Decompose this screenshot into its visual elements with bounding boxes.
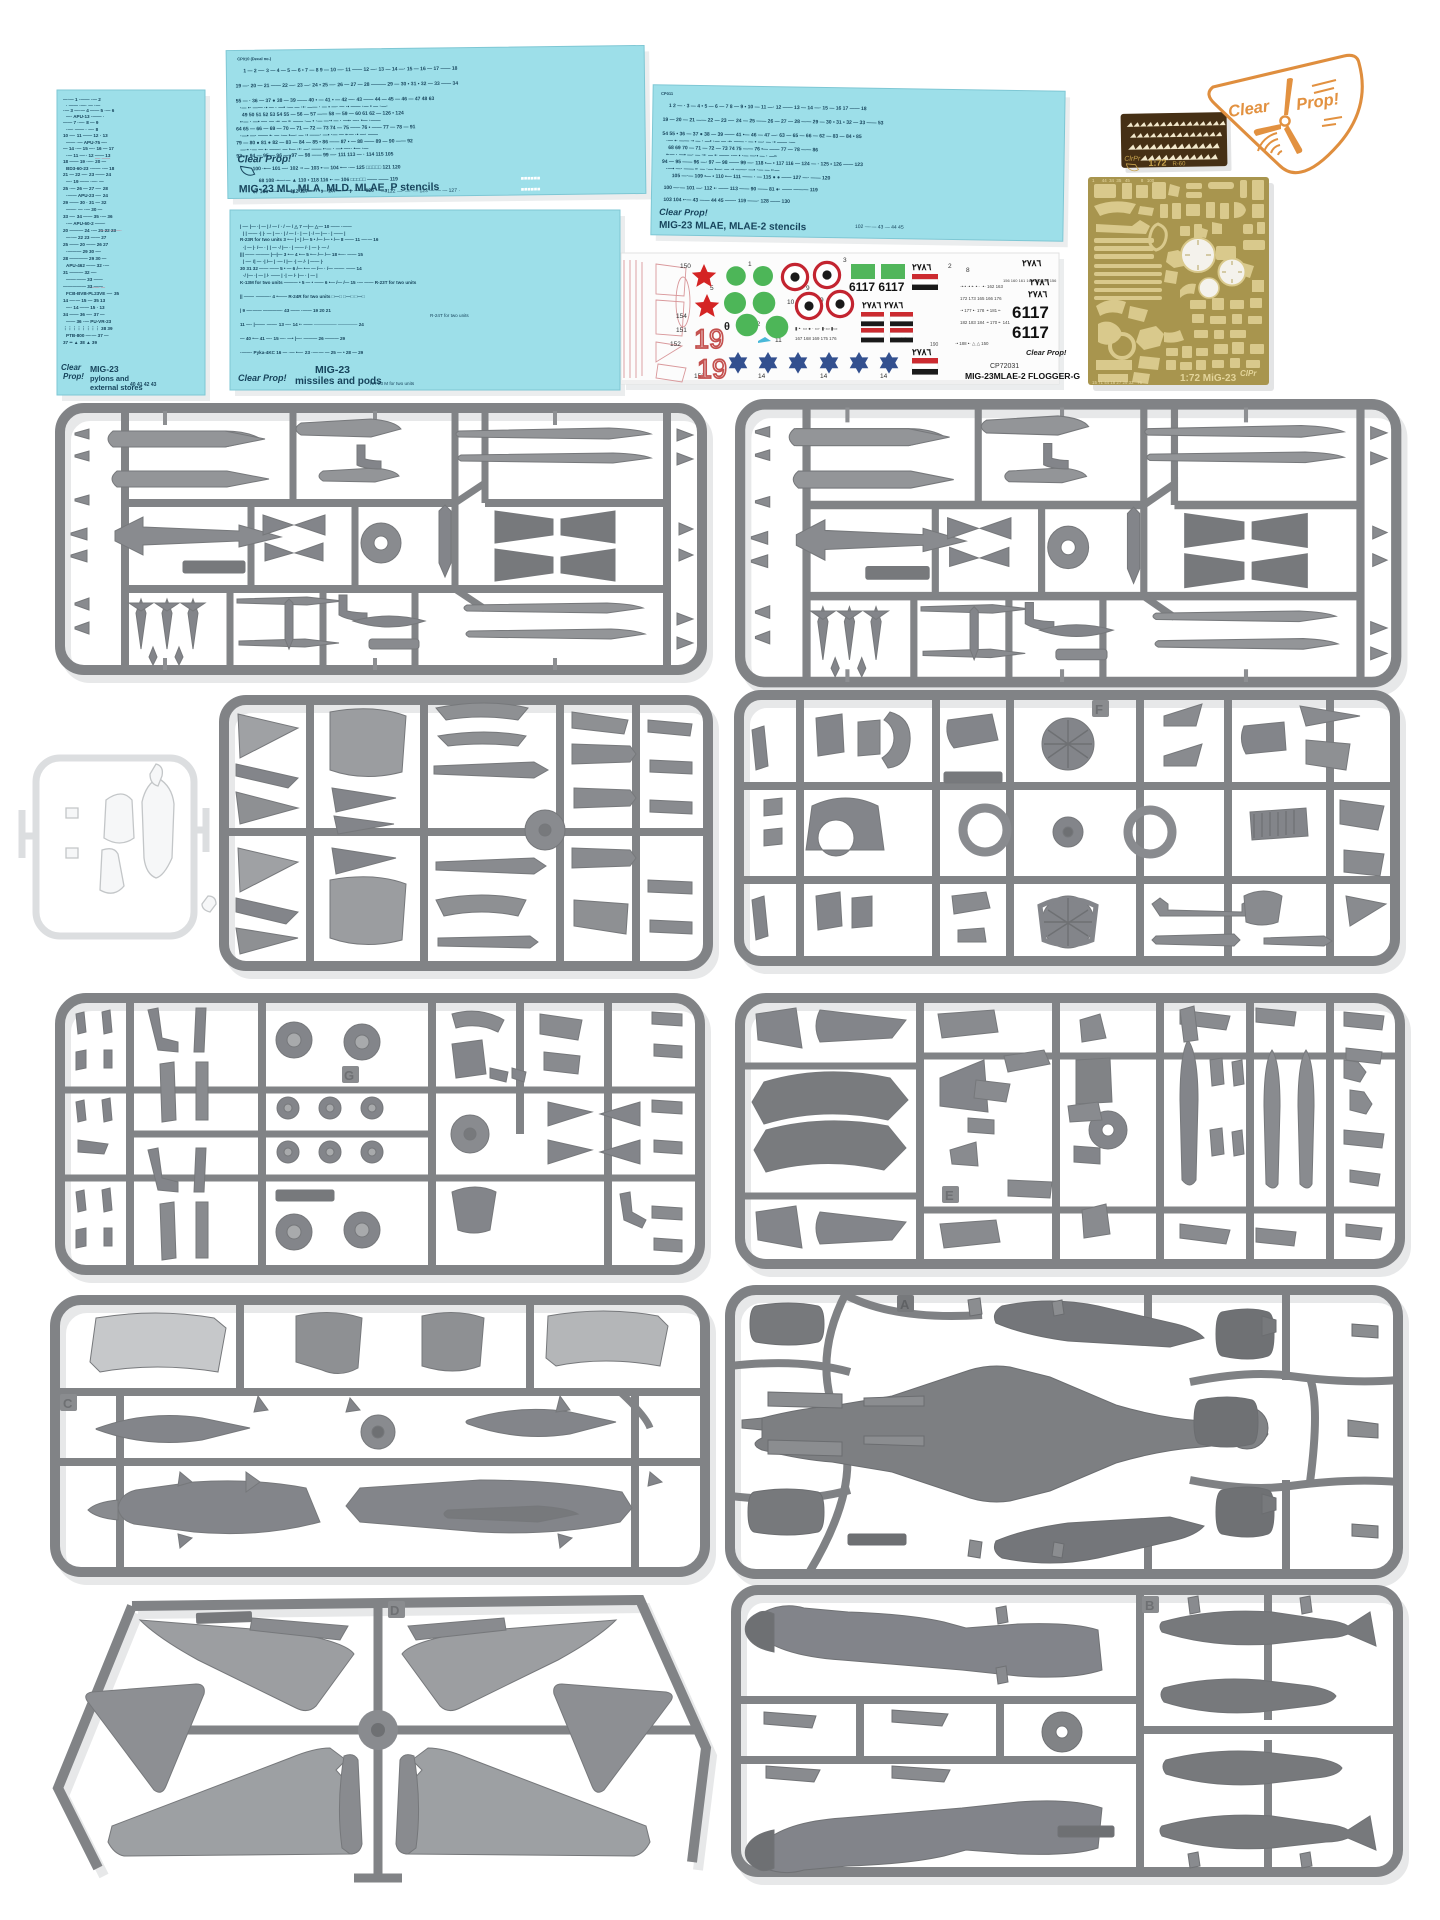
svg-text:—— 36 ·— PU-VR-23: —— 36 ·— PU-VR-23 bbox=[66, 319, 112, 324]
svg-text:||| —— ——— |—|— 3 •— 4 •—: ||| —— ——— |—|— 3 •— 4 •— 5 •— /— /— 18 … bbox=[240, 252, 363, 257]
svg-text:172 173 165 166 176: 172 173 165 166 176 bbox=[960, 296, 1002, 301]
svg-text:CP010 (Decal no.): CP010 (Decal no.) bbox=[237, 56, 272, 61]
svg-text:—· 14 —— 15 · 13: —· 14 —— 15 · 13 bbox=[66, 305, 105, 310]
svg-text:٢٧٨٦: ٢٧٨٦ bbox=[912, 347, 932, 357]
svg-text:G: G bbox=[344, 1068, 354, 1083]
svg-text:25 —— 20 —— 26 27: 25 —— 20 —— 26 27 bbox=[63, 242, 109, 247]
svg-text:·—· —— · —· 8: ·—· —— · —· 8 bbox=[66, 127, 99, 132]
svg-text:·| — |· /— · | | — ·/ |— · | —: ·| — |· /— · | | — ·/ |— · | —— /· | — |… bbox=[243, 245, 330, 250]
svg-text:1 44 34 35 45: 1 44 34 35 45 8 100 bbox=[1092, 178, 1155, 183]
svg-text:pylons and: pylons and bbox=[90, 374, 129, 383]
svg-text:Clear Prop!: Clear Prop! bbox=[238, 373, 287, 383]
svg-text:FCB-BVB-PL23VE —· 35: FCB-BVB-PL23VE —· 35 bbox=[66, 291, 120, 296]
svg-text:1:72 MiG-23: 1:72 MiG-23 bbox=[1180, 373, 1237, 384]
svg-text:14 —·— 15 — 35 13: 14 —·— 15 — 35 13 bbox=[63, 298, 106, 303]
svg-text:21 — 22 —· 23 —— 24: 21 — 22 —· 23 —— 24 bbox=[63, 172, 111, 177]
svg-text:MIG-23 MLAE, MLAE-2 stencils: MIG-23 MLAE, MLAE-2 stencils bbox=[659, 220, 807, 233]
svg-text:▮ •· ▭ ● · ▭· ▮·▭ ▮▭: ▮ •· ▭ ● · ▭· ▮·▭ ▮▭ bbox=[795, 326, 837, 331]
svg-text:ClrPr: ClrPr bbox=[1124, 156, 1141, 163]
svg-text:6117: 6117 bbox=[1012, 303, 1049, 322]
svg-text:152: 152 bbox=[670, 341, 681, 348]
svg-text:37 •• ▲ 38 ▲ 39: 37 •• ▲ 38 ▲ 39 bbox=[63, 340, 97, 345]
svg-text:C: C bbox=[63, 1396, 73, 1411]
svg-text:167 168 169 175 176: 167 168 169 175 176 bbox=[795, 336, 837, 341]
svg-text:11 —· |——· ——· 13 —· 14 •· —: 11 —· |——· ——· 13 —· 14 •· —— ─────── ──… bbox=[240, 322, 364, 327]
svg-text:MIG-23MLAE-2 FLOGGER-G: MIG-23MLAE-2 FLOGGER-G bbox=[965, 371, 1080, 381]
svg-text:30 31 32 —— —— 5 • — 6 /— •: 30 31 32 —— —— 5 • — 6 /— •— — /— · /— —… bbox=[240, 266, 362, 271]
svg-text:156 160 161 162 163 155 156: 156 160 161 162 163 155 156 bbox=[1003, 278, 1057, 283]
svg-text:|| ——· ———· 4 •—— R-24R for: || ——· ———· 4 •—— R-24R for two units □—… bbox=[240, 294, 365, 299]
svg-text:40 41 42 43: 40 41 42 43 bbox=[130, 382, 157, 388]
svg-text:102 —·— 43 — 44 45: 102 —·— 43 — 44 45 bbox=[855, 224, 904, 231]
svg-text:KH-23 M for two units: KH-23 M for two units bbox=[370, 381, 415, 386]
svg-text:8: 8 bbox=[966, 267, 970, 274]
svg-text:Clear: Clear bbox=[61, 363, 82, 372]
svg-text:CP72031: CP72031 bbox=[990, 363, 1019, 370]
svg-text:————— 33 ——: ————— 33 —— bbox=[63, 284, 103, 289]
svg-text:R-23R for two units 3 •— |: R-23R for two units 3 •— | • | /— 5 • /—… bbox=[240, 237, 379, 242]
svg-text:·/ |— ·| — | /· —— | ·| — /· |: ·/ |— ·| — | /· —— | ·| — /· |— · | — | bbox=[243, 273, 318, 278]
svg-text:٢٧٨٦: ٢٧٨٦ bbox=[1022, 258, 1042, 268]
svg-text:F: F bbox=[1095, 702, 1103, 717]
svg-text:190: 190 bbox=[930, 342, 939, 348]
svg-text:R-60: R-60 bbox=[1172, 161, 1186, 167]
svg-text:14: 14 bbox=[820, 373, 828, 380]
svg-text:APU-462 —— 32 ·—: APU-462 —— 32 ·— bbox=[66, 263, 110, 268]
svg-text:Clear Prop!: Clear Prop! bbox=[1026, 348, 1067, 357]
svg-text:٢٧٨٦: ٢٧٨٦ bbox=[912, 262, 932, 272]
svg-text:٢٧٨٦: ٢٧٨٦ bbox=[1028, 289, 1048, 299]
svg-text:182 183 184 ·• 170 •· 141: 182 183 184 ·• 170 •· 141 bbox=[960, 320, 1011, 325]
svg-text:D: D bbox=[390, 1603, 399, 1618]
svg-text:A: A bbox=[900, 1297, 910, 1312]
svg-text:٢٧٨٦ ٢٧٨٦: ٢٧٨٦ ٢٧٨٦ bbox=[862, 300, 903, 310]
svg-text:1:72: 1:72 bbox=[1148, 158, 1166, 168]
svg-text:B: B bbox=[1145, 1598, 1154, 1613]
svg-text:33 —· 34 —— 35 ·— 36: 33 —· 34 —— 35 ·— 36 bbox=[63, 214, 113, 219]
svg-text:151: 151 bbox=[676, 327, 687, 334]
svg-text:— 14 ·— 15 —· 16 — 17: — 14 ·— 15 —· 16 — 17 bbox=[63, 146, 114, 151]
svg-text:150: 150 bbox=[680, 263, 691, 270]
svg-text:25 ·— 26 — 27 —· 28: 25 ·— 26 — 27 —· 28 bbox=[63, 186, 108, 191]
svg-text:3: 3 bbox=[843, 257, 847, 264]
svg-text:·• 188 •· △ △ 150: ·• 188 •· △ △ 150 bbox=[955, 341, 989, 346]
svg-text:31 ——— 32 —·: 31 ——— 32 —· bbox=[63, 270, 97, 275]
svg-text:154: 154 bbox=[676, 313, 687, 320]
svg-text:34 —— 36 —· 37 —: 34 —— 36 —· 37 — bbox=[63, 312, 105, 317]
svg-text:28 ———— 29 30 —: 28 ———— 29 30 — bbox=[63, 256, 107, 261]
svg-text:—·— 22 23 —— 27: —·— 22 23 —— 27 bbox=[66, 235, 107, 240]
svg-text:—·— 1 ·—— ·— 2: —·— 1 ·—— ·— 2 bbox=[63, 97, 101, 102]
svg-text:—— 7 ·—· 8 — 9: —— 7 ·—· 8 — 9 bbox=[63, 120, 99, 125]
svg-text:R-24T for two units: R-24T for two units bbox=[430, 313, 469, 318]
svg-text:Clear Prop!: Clear Prop! bbox=[237, 154, 292, 166]
svg-text:19: 19 bbox=[694, 324, 724, 354]
svg-text:15 71 44 18 27 29 32 75: 15 71 44 18 27 29 32 75 bbox=[1092, 380, 1143, 385]
svg-text:| —· /| — ·| /— | ·— / |— ·| —: | —· /| — ·| /— | ·— / |— ·| — /· | —— |… bbox=[243, 259, 323, 264]
svg-text:| 9 —·—— ————· 43 —— ·—— 19: | 9 —·—— ————· 43 —— ·—— 19 20 21 bbox=[240, 308, 331, 313]
svg-text:— 40 •— 41 —· 15 —· —• |—·: — 40 •— 41 —· 15 —· —• |—· ——— 26 ——— 29 bbox=[240, 336, 346, 341]
svg-text:·— APU-60-2 ——·: ·— APU-60-2 ——· bbox=[66, 221, 106, 226]
svg-text:Clear Prop!: Clear Prop! bbox=[659, 207, 708, 218]
svg-text:1: 1 bbox=[748, 261, 752, 268]
svg-text:20 ——— 24 ·— 21 22 23: 20 ——— 24 ·— 21 22 23 bbox=[63, 228, 117, 233]
svg-text:29 —— 30 · 31 — 32: 29 —— 30 · 31 — 32 bbox=[63, 200, 107, 205]
svg-text:| —· |— ·| — | / — / · /: | —· |— ·| — | / — / · / — / △ 7 —|— △— … bbox=[240, 224, 352, 229]
svg-text:·•·• ·• •· •·· ·•· 162 163: ·•·• ·• •· •·· ·•· 162 163 bbox=[960, 284, 1003, 289]
svg-text:14: 14 bbox=[758, 373, 766, 380]
svg-text:18 —— 19 ·—· 20 —: 18 —— 19 ·—· 20 — bbox=[63, 159, 107, 164]
svg-text:E: E bbox=[945, 1188, 954, 1203]
svg-text:14: 14 bbox=[880, 373, 888, 380]
svg-text:Prop!: Prop! bbox=[63, 372, 84, 381]
svg-text:·—— APU-23 —· 24: ·—— APU-23 —· 24 bbox=[66, 193, 108, 198]
svg-text:—· APU-13 ·—— ·: —· APU-13 ·—— · bbox=[66, 114, 104, 119]
svg-text:·——· Pyka-4KC 16 — ·— •—·: ·——· Pyka-4KC 16 — ·— •—· 23 ·—·— — 25 —… bbox=[240, 350, 364, 355]
svg-text:6117 6117: 6117 6117 bbox=[849, 280, 905, 294]
svg-text:■■■■■■: ■■■■■■ bbox=[521, 176, 541, 182]
svg-text:BD3-60-23 ·—— ·— 18: BD3-60-23 ·—— ·— 18 bbox=[66, 166, 115, 171]
svg-text:·——— 29 30 —·: ·——— 29 30 —· bbox=[66, 249, 101, 254]
svg-text:■■■■■■: ■■■■■■ bbox=[521, 187, 541, 193]
svg-text:——·—— 33 ——: ——·—— 33 —— bbox=[66, 277, 103, 282]
svg-text:2: 2 bbox=[948, 263, 952, 270]
svg-text:·• 177 •· 178 ·• 181 •·: ·• 177 •· 178 ·• 181 •· bbox=[960, 308, 1001, 313]
svg-text:θ: θ bbox=[724, 321, 730, 333]
svg-text:9: 9 bbox=[806, 285, 810, 292]
svg-text:K-13M for two units ——— • 5 —: K-13M for two units ——— • 5 — • —— 6 •— … bbox=[240, 280, 417, 285]
svg-text:10 —· 11 —— 12 · 13: 10 —· 11 —— 12 · 13 bbox=[63, 133, 108, 138]
svg-text:PTB-800 —·— 37 —: PTB-800 —·— 37 — bbox=[66, 333, 109, 338]
svg-text:| | —— ·| |· — | — · | / — / ·: | | —— ·| |· — | — · | / — / · | — | ·/ … bbox=[243, 231, 345, 236]
svg-text:— 122 —· —· — 123 —·—: — 122 —· —· — 123 —·— — 127 · bbox=[381, 188, 461, 195]
svg-text:——· — ·— 30 —: ——· — ·— 30 — bbox=[66, 207, 103, 212]
svg-text:MIG-23: MIG-23 bbox=[315, 364, 350, 376]
svg-text:⋮⋮⋮⋮⋮⋮⋮⋮ 38 39: ⋮⋮⋮⋮⋮⋮⋮⋮ 38 39 bbox=[63, 325, 113, 332]
svg-text:MIG-23: MIG-23 bbox=[90, 364, 119, 374]
svg-text:6117: 6117 bbox=[1012, 323, 1049, 342]
svg-text:CP011: CP011 bbox=[661, 91, 674, 96]
svg-text:10: 10 bbox=[787, 299, 795, 306]
svg-text:·— 3 —·— 4 —— 5 ·— 6: ·— 3 —·— 4 —— 5 ·— 6 bbox=[63, 108, 115, 113]
svg-text:—— ·— APU-75 —·: —— ·— APU-75 —· bbox=[66, 140, 107, 145]
svg-text:19: 19 bbox=[697, 354, 727, 384]
svg-text:—· 19 —— ·—· —: —· 19 —— ·—· — bbox=[66, 179, 104, 184]
svg-text:ClPr: ClPr bbox=[1240, 369, 1257, 378]
